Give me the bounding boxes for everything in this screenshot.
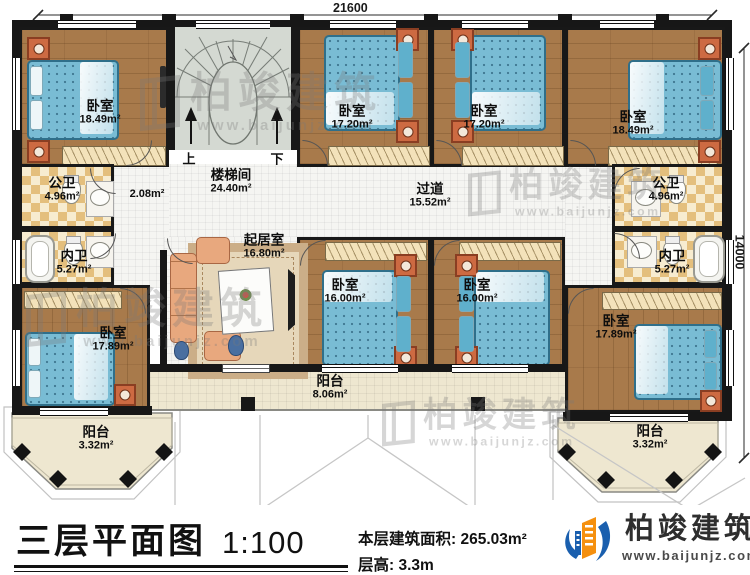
room-stairwell: [169, 27, 297, 150]
plan-title: 三层平面图: [16, 513, 206, 564]
wall-pilaster: [290, 14, 304, 27]
title-underline: [14, 565, 348, 568]
pillow: [704, 330, 717, 358]
room-label-balcony-left: 阳台 3.32m²: [79, 424, 114, 451]
room-label-bedroom-tr: 卧室 18.49m²: [613, 109, 654, 136]
window: [12, 330, 21, 386]
bed-sheet: [636, 326, 668, 394]
pillow: [398, 42, 413, 78]
tv: [288, 269, 295, 331]
corridor-floor: [114, 164, 612, 237]
room-label-public-bath-right: 公卫 4.96m²: [649, 175, 684, 202]
room-label-bedroom-bm1: 卧室 16.00m²: [325, 277, 366, 304]
window: [462, 20, 528, 29]
nightstand: [27, 140, 50, 163]
floor-height-text: 层高: 3.3m: [358, 553, 527, 575]
room-label-bedroom-bl: 卧室 17.89m²: [93, 325, 134, 352]
room-label-bedroom-t3: 卧室 17.20m²: [464, 103, 505, 130]
nightstand: [698, 140, 721, 163]
stairs-up-label: 上: [182, 149, 195, 168]
living-room-left-wall: [160, 250, 167, 368]
window: [725, 58, 734, 130]
wall-pilaster: [162, 14, 176, 27]
window: [322, 364, 398, 373]
window: [58, 20, 136, 29]
room-label-private-bath-left: 内卫 5.27m²: [57, 248, 92, 275]
balcony-edge: [150, 409, 565, 411]
window: [12, 58, 21, 130]
title-block: 三层平面图 1:100 本层建筑面积: 265.03m² 层高: 3.3m: [0, 505, 750, 575]
armchair: [196, 237, 230, 264]
pillow: [396, 316, 411, 352]
window: [725, 330, 734, 386]
balcony-post: [471, 397, 485, 411]
balcony-posts: [13, 443, 722, 489]
pillow: [700, 66, 714, 96]
window: [196, 20, 270, 29]
wardrobe: [462, 146, 564, 166]
floor-area-text: 本层建筑面积: 265.03m²: [358, 527, 527, 553]
door-leaf: [160, 66, 166, 108]
nightstand: [700, 390, 722, 412]
sliding-door: [222, 364, 270, 373]
nightstand: [396, 120, 419, 143]
pillow: [398, 82, 413, 118]
room-label-hall: 2.08m²: [130, 188, 165, 200]
wardrobe: [602, 292, 722, 310]
room-label-bedroom-t2: 卧室 17.20m²: [332, 103, 373, 130]
dimension-height-label: 14000: [732, 235, 746, 270]
brand-name: 柏竣建筑: [625, 515, 750, 544]
room-label-private-bath-right: 内卫 5.27m²: [655, 248, 690, 275]
pillow: [396, 276, 411, 312]
pillow: [459, 316, 474, 352]
brand-text: 柏竣建筑 www.baijunjz.com: [622, 515, 750, 562]
corridor-floor-right: [565, 164, 612, 288]
wall-pilaster: [424, 14, 438, 27]
bay-outline-left: [4, 407, 180, 499]
nightstand: [27, 37, 50, 60]
wardrobe: [24, 291, 122, 309]
room-label-living-room: 起居室 16.80m²: [244, 232, 285, 259]
pillow: [28, 338, 41, 366]
plan-title-row: 三层平面图 1:100: [16, 513, 305, 564]
pillow: [455, 42, 470, 78]
window: [600, 20, 654, 29]
pillow: [704, 362, 717, 390]
plan-meta: 本层建筑面积: 265.03m² 层高: 3.3m: [358, 527, 527, 575]
sofa: [170, 253, 197, 343]
pillow: [30, 100, 43, 130]
brand-url: www.baijunjz.com: [622, 549, 750, 562]
person-figure: [228, 335, 244, 356]
dimension-width-label: 21600: [333, 1, 368, 15]
room-label-bedroom-tl: 卧室 18.49m²: [80, 98, 121, 125]
wall-pilaster: [558, 14, 572, 27]
nightstand: [394, 254, 417, 277]
room-label-balcony-right: 阳台 3.32m²: [633, 423, 668, 450]
coffee-table: [218, 267, 274, 334]
room-label-bedroom-bm2: 卧室 16.00m²: [457, 277, 498, 304]
room-label-balcony-center: 阳台 8.06m²: [313, 373, 348, 400]
brand-logo-icon: [562, 509, 614, 567]
window: [12, 240, 21, 284]
person-figure: [174, 341, 189, 360]
window: [40, 407, 108, 416]
stairs-down-label: 下: [270, 149, 283, 168]
nightstand: [114, 384, 136, 406]
wall-pilaster: [656, 14, 669, 27]
room-label-corridor: 过道 15.52m²: [410, 181, 451, 208]
nightstand: [698, 37, 721, 60]
window: [330, 20, 396, 29]
window: [610, 413, 688, 422]
balcony-post: [241, 397, 255, 411]
bathtub: [25, 235, 55, 283]
room-bedroom-top-right: [565, 27, 725, 167]
wardrobe: [328, 146, 430, 166]
bathtub: [693, 235, 725, 283]
window: [725, 240, 734, 284]
room-label-bedroom-br: 卧室 17.89m²: [596, 313, 637, 340]
pillow: [28, 370, 41, 398]
room-label-public-bath-left: 公卫 4.96m²: [45, 175, 80, 202]
title-underline-thin: [14, 571, 348, 572]
pillow: [700, 100, 714, 130]
window: [452, 364, 528, 373]
room-label-stairwell: 楼梯间 24.40m²: [211, 167, 252, 194]
floor-plan-page: 21600 14000: [0, 0, 750, 575]
plan-scale: 1:100: [222, 525, 305, 561]
pillow: [30, 66, 43, 96]
brand-logo-block: 柏竣建筑 www.baijunjz.com: [562, 509, 750, 567]
